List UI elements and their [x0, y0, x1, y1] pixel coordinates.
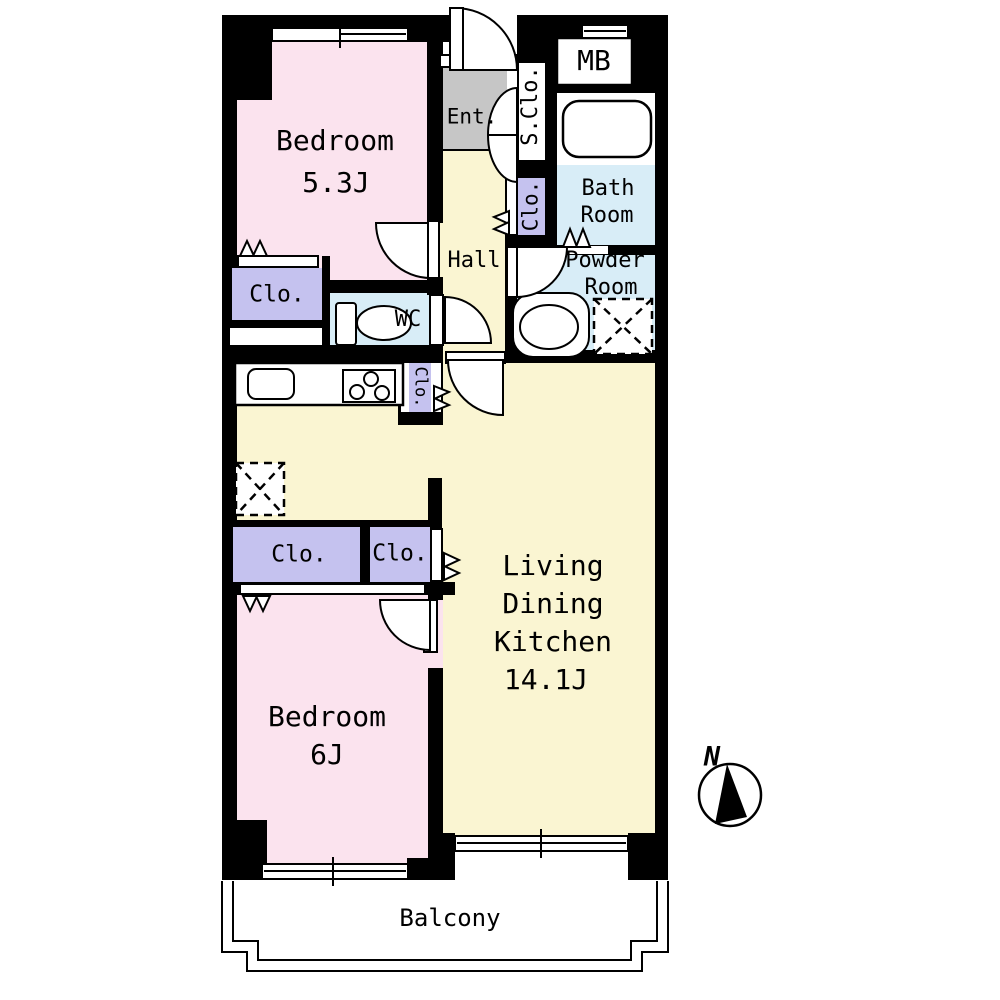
ldk-label-3: Kitchen: [494, 628, 612, 656]
powder-label-2: Room: [585, 277, 638, 299]
burner-2: [350, 385, 364, 399]
shoe-closet-label: S.Clo.: [520, 66, 542, 145]
bath-label-1: Bath: [582, 178, 635, 200]
wash-basin: [520, 305, 578, 349]
bedroom1-label: Bedroom: [276, 127, 394, 155]
closet-bath-label: Clo.: [521, 181, 542, 232]
closet2-front: [240, 584, 425, 594]
floor-plan: Bedroom 5.3J Ent. S.Clo. MB Bath Room Cl…: [0, 0, 1000, 1000]
bedroom1-area: 5.3J: [302, 169, 369, 197]
hall-label: Hall: [448, 250, 501, 272]
powder-door-leaf: [507, 247, 517, 297]
floor-plan-graphic: [0, 0, 1000, 1000]
ldk-label-1: Living: [502, 552, 603, 580]
entrance-door: [455, 8, 517, 70]
bathtub: [563, 101, 651, 157]
toilet-tank: [336, 303, 356, 345]
closet-bedroom1-label: Clo.: [249, 284, 304, 307]
ldk-label-2: Dining: [502, 590, 603, 618]
meter-box-label: MB: [577, 47, 611, 75]
closet-kitchen-label: Clo.: [412, 367, 429, 408]
wc-door-leaf: [430, 295, 443, 345]
room-floors: [237, 38, 655, 866]
burner-3: [375, 386, 389, 400]
entrance-door-leaf: [450, 8, 463, 70]
closet2-small-label: Clo.: [372, 543, 427, 566]
compass-north-label: N: [704, 744, 720, 771]
closet2-large-label: Clo.: [271, 544, 326, 567]
burner-1: [364, 372, 378, 386]
closet1-front: [238, 256, 318, 267]
compass: [699, 764, 761, 826]
bedroom2-label: Bedroom: [268, 703, 386, 731]
kitchen-sink: [248, 369, 294, 399]
ldk-area: 14.1J: [504, 666, 588, 694]
closet2-door: [431, 529, 442, 581]
balcony-label: Balcony: [399, 906, 500, 930]
wc-label: WC: [395, 309, 422, 331]
bedroom2-area: 6J: [310, 741, 344, 769]
bath-label-2: Room: [581, 205, 634, 227]
powder-label-1: Powder: [565, 250, 644, 272]
washing-machine-space: [594, 299, 652, 354]
entrance-label: Ent.: [447, 107, 498, 128]
bedroom1-door-leaf: [428, 221, 439, 278]
